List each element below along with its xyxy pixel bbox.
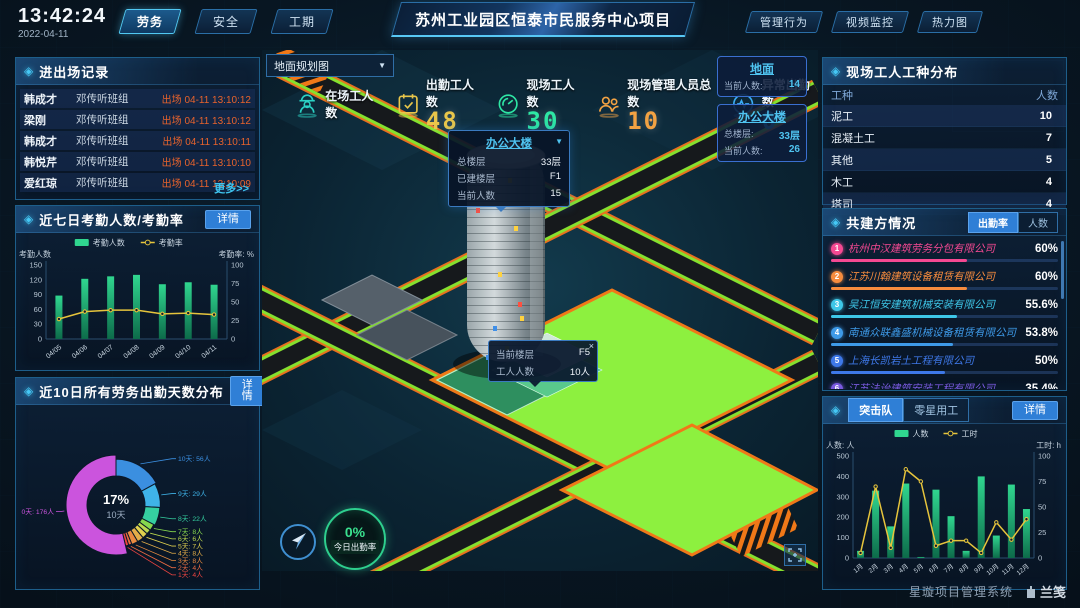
rank-badge: 1 (831, 243, 843, 255)
svg-text:04/07: 04/07 (97, 344, 115, 360)
panel-entry-exit: ◈ 进出场记录 韩成才 邓传听班组 出场 04-11 13:10:12 梁刚 邓… (15, 57, 260, 200)
panel-squad: ◈ 突击队零星用工 详情 人数工时人数: 人工时: h0100200300400… (822, 396, 1067, 590)
panel-title: 共建方情况 (846, 213, 916, 232)
partners-list: 1 杭州中汉建筑劳务分包有限公司 60% 2 江苏川翰建筑设备租赁有限公司 60… (823, 236, 1066, 389)
column-type: 工种 (831, 87, 853, 103)
map-layer-value: 地面规划图 (274, 58, 378, 74)
svg-text:人数: 人数 (913, 429, 929, 439)
partners-tabs: 出勤率人数 (968, 212, 1058, 233)
svg-text:3月: 3月 (882, 562, 895, 575)
zone-row-value: 26 (789, 144, 800, 157)
header-action-label: 管理行为 (760, 14, 808, 30)
workdays-donut-chart: 10天: 56人9天: 29人8天: 22人7天: 8人6天: 6人5天: 7人… (16, 405, 257, 588)
header-action-label: 视频监控 (846, 14, 894, 30)
partner-name: 江苏川翰建筑设备租赁有限公司 (848, 269, 1030, 284)
close-icon[interactable]: × (589, 341, 594, 351)
panel-attendance-chart: ◈ 近七日考勤人数/考勤率 详情 考勤人数考勤率考勤人数考勤率: %030609… (15, 205, 260, 371)
vendor-logo-text: 兰笺 (1040, 582, 1066, 601)
gauge-value: 0% (345, 524, 365, 540)
worker-count: 10 (1040, 110, 1058, 122)
svg-text:120: 120 (29, 275, 42, 284)
more-link[interactable]: 更多>> (214, 180, 249, 196)
header-tab[interactable]: 劳务 (118, 9, 181, 34)
svg-text:400: 400 (836, 472, 849, 481)
worker-type: 混凝土工 (831, 130, 875, 146)
worker-types-table-header: 工种 人数 (823, 85, 1066, 105)
map-layer-select[interactable]: 地面规划图 ▼ (266, 54, 394, 77)
svg-text:100: 100 (231, 261, 244, 270)
zone-row-label: 当前人数: (724, 79, 763, 92)
rank-badge: 5 (831, 355, 843, 367)
panel-title: 现场工人工种分布 (846, 62, 958, 81)
header-tab-label: 工期 (289, 13, 315, 30)
panel-title: 近10日所有劳务出勤天数分布 (39, 382, 223, 401)
clock: 13:42:24 2022-04-11 (18, 5, 106, 40)
zone-card-office-tower: 办公大楼 总楼层:33层 当前人数:26 (717, 104, 807, 162)
worker-icon (294, 89, 320, 119)
svg-text:2月: 2月 (867, 562, 880, 575)
page-title-plaque: 苏州工业园区恒泰市民服务中心项目 (391, 2, 695, 37)
exit-time: 出场 04-11 13:10:12 (162, 112, 251, 127)
popup-row-value: 15 (550, 188, 561, 202)
rank-badge: 3 (831, 299, 843, 311)
partner-value: 60% (1035, 271, 1058, 283)
rank-badge: 6 (831, 383, 843, 390)
svg-text:0: 0 (845, 554, 849, 563)
header-tab-label: 安全 (213, 13, 239, 30)
svg-text:人数: 人: 人数: 人 (826, 440, 854, 450)
panel-attendance-header: ◈ 近七日考勤人数/考勤率 详情 (16, 206, 259, 233)
tab[interactable]: 突击队 (848, 398, 903, 422)
rank-badge: 4 (831, 327, 843, 339)
detail-button[interactable]: 详情 (1012, 401, 1058, 420)
partner-value: 50% (1035, 355, 1058, 367)
partner-progress-fill (831, 287, 967, 290)
worker-count: 7 (1046, 132, 1058, 144)
partner-progress-fill (831, 259, 967, 262)
calendar-check-icon (395, 89, 421, 119)
svg-text:75: 75 (1038, 477, 1046, 486)
panel-worker-types-header: ◈ 现场工人工种分布 (823, 58, 1066, 85)
svg-text:12月: 12月 (1015, 562, 1031, 577)
header-action-button[interactable]: 管理行为 (745, 11, 823, 33)
column-count: 人数 (1036, 87, 1058, 103)
exit-time: 出场 04-11 13:10:11 (162, 133, 251, 148)
svg-text:17%: 17% (103, 492, 129, 507)
stat-onsite-workers: 在场工人数 (294, 76, 382, 132)
worker-name: 梁刚 (24, 112, 76, 128)
zone-row-label: 总楼层: (724, 127, 754, 142)
worker-name: 韩悦芹 (24, 154, 76, 170)
attendance-bar-line-chart: 考勤人数考勤率考勤人数考勤率: %03060901201500255075100… (16, 233, 257, 369)
svg-text:50: 50 (231, 298, 239, 307)
worker-type: 其他 (831, 152, 853, 168)
zone-row-value: 14 (789, 79, 800, 92)
time-text: 13:42:24 (18, 5, 106, 28)
popup-row-label: 总楼层 (457, 154, 486, 168)
svg-text:6天: 6人: 6天: 6人 (178, 535, 203, 543)
partner-progress-track (831, 287, 1058, 290)
footer: 星璇项目管理系统 兰笺 (909, 582, 1066, 601)
svg-text:04/11: 04/11 (201, 344, 219, 360)
tab[interactable]: 零星用工 (903, 398, 969, 422)
popup-row-label: 已建楼层 (457, 171, 495, 185)
partner-progress-track (831, 371, 1058, 374)
scrollbar[interactable] (1061, 241, 1064, 299)
stat-attending-workers: 出勤工人数48 (395, 76, 483, 132)
exit-time: 出场 04-11 13:10:10 (162, 154, 251, 169)
header-tab[interactable]: 安全 (194, 9, 257, 34)
svg-text:25: 25 (1038, 528, 1046, 537)
svg-text:9天: 29人: 9天: 29人 (178, 490, 207, 498)
svg-text:200: 200 (836, 513, 849, 522)
partner-row: 2 江苏川翰建筑设备租赁有限公司 60% (831, 269, 1058, 290)
svg-text:8天: 22人: 8天: 22人 (178, 515, 207, 523)
svg-text:04/06: 04/06 (71, 344, 89, 360)
svg-text:考勤率: 考勤率 (159, 238, 183, 248)
svg-text:5天: 7人: 5天: 7人 (178, 542, 203, 550)
header-action-button[interactable]: 视频监控 (831, 11, 909, 33)
panel-partners-header: ◈ 共建方情况 出勤率人数 (823, 209, 1066, 236)
svg-text:工时: h: 工时: h (1036, 440, 1061, 450)
partner-progress-track (831, 259, 1058, 262)
partner-row: 1 杭州中汉建筑劳务分包有限公司 60% (831, 241, 1058, 262)
compass-icon[interactable] (278, 522, 318, 562)
partner-row: 3 吴江恒安建筑机械安装有限公司 55.6% (831, 297, 1058, 318)
svg-text:3天: 8人: 3天: 8人 (178, 557, 203, 565)
worker-name: 韩成才 (24, 133, 76, 149)
worker-group: 邓传听班组 (76, 112, 162, 127)
svg-text:04/10: 04/10 (174, 344, 192, 360)
entry-exit-row: 韩悦芹 邓传听班组 出场 04-11 13:10:10 (20, 152, 255, 171)
svg-text:考勤率: %: 考勤率: % (218, 249, 254, 259)
zone-row-label: 当前人数: (724, 144, 763, 157)
people-icon (596, 89, 622, 119)
header-tabs: 劳务安全工期 (122, 9, 330, 34)
popup-row-value: 33层 (541, 154, 561, 168)
worker-count: 5 (1046, 154, 1058, 166)
svg-text:150: 150 (29, 261, 42, 270)
svg-text:90: 90 (34, 290, 42, 299)
building-popup-title[interactable]: 办公大楼 (486, 135, 532, 151)
detail-button[interactable]: 详情 (230, 376, 265, 406)
panel-partners: ◈ 共建方情况 出勤率人数 1 杭州中汉建筑劳务分包有限公司 60% 2 江苏川… (822, 208, 1067, 391)
svg-text:4月: 4月 (897, 562, 910, 575)
partner-name: 吴江恒安建筑机械安装有限公司 (848, 297, 1020, 312)
page-title: 苏州工业园区恒泰市民服务中心项目 (397, 3, 689, 35)
header-tab[interactable]: 工期 (270, 9, 333, 34)
svg-text:0: 0 (1038, 554, 1042, 563)
partner-row: 5 上海长凯岩土工程有限公司 50% (831, 353, 1058, 374)
stat-managers: 现场管理人员总数10 (596, 76, 718, 132)
svg-text:100: 100 (1038, 452, 1051, 461)
svg-text:10天: 10天 (106, 510, 125, 520)
smart-site-dashboard: 13:42:24 2022-04-11 劳务安全工期 苏州工业园区恒泰市民服务中… (0, 0, 1080, 608)
squad-bar-line-chart: 人数工时人数: 人工时: h01002003004005000255075100… (823, 424, 1064, 588)
tooltip-row-value: 10人 (570, 364, 590, 378)
partner-name: 上海长凯岩土工程有限公司 (848, 353, 1030, 368)
svg-text:7天: 8人: 7天: 8人 (178, 528, 203, 536)
panel-workdays-header: ◈ 近10日所有劳务出勤天数分布 详情 (16, 378, 259, 405)
chevron-down-icon: ▼ (378, 61, 386, 70)
popup-row-value: F1 (550, 171, 561, 185)
svg-text:300: 300 (836, 492, 849, 501)
partner-name: 江苏法诒建筑安装工程有限公司 (848, 381, 1020, 389)
svg-text:0: 0 (38, 335, 42, 344)
detail-button[interactable]: 详情 (205, 210, 251, 229)
panel-entry-exit-header: ◈ 进出场记录 (16, 58, 259, 85)
floor-tooltip: × 当前楼层F5 工人人数10人 (488, 340, 598, 382)
expand-icon (788, 548, 802, 562)
svg-text:2天: 4人: 2天: 4人 (178, 564, 203, 572)
squad-tabs: 突击队零星用工 (848, 398, 969, 422)
svg-text:500: 500 (836, 452, 849, 461)
fullscreen-toggle[interactable] (784, 544, 806, 566)
tower-logo-icon (1025, 585, 1037, 599)
worker-types-table: 泥工 10 混凝土工 7 其他 5 木工 4 塔司 4 (823, 105, 1066, 215)
svg-text:4天: 8人: 4天: 8人 (178, 550, 203, 558)
entry-exit-row: 韩成才 邓传听班组 出场 04-11 13:10:11 (20, 131, 255, 150)
svg-text:考勤人数: 考勤人数 (19, 249, 51, 259)
system-name: 星璇项目管理系统 (909, 583, 1013, 600)
tooltip-row-label: 当前楼层 (496, 347, 534, 361)
partner-progress-fill (831, 371, 945, 374)
tooltip-row-label: 工人人数 (496, 364, 534, 378)
partner-value: 55.6% (1025, 299, 1058, 311)
partner-progress-track (831, 315, 1058, 318)
date-text: 2022-04-11 (18, 29, 106, 40)
header-tab-label: 劳务 (137, 13, 163, 30)
svg-text:考勤人数: 考勤人数 (93, 238, 125, 248)
popup-row-label: 当前人数 (457, 188, 495, 202)
svg-text:30: 30 (34, 320, 42, 329)
diamond-icon: ◈ (831, 215, 840, 229)
panel-title: 近七日考勤人数/考勤率 (39, 210, 184, 229)
svg-text:04/09: 04/09 (148, 344, 166, 360)
worker-type-row: 混凝土工 7 (823, 127, 1066, 149)
zone-row-value: 33层 (779, 127, 800, 142)
worker-group: 邓传听班组 (76, 91, 162, 106)
entry-exit-row: 韩成才 邓传听班组 出场 04-11 13:10:12 (20, 89, 255, 108)
svg-text:60: 60 (34, 305, 42, 314)
partner-progress-fill (831, 343, 953, 346)
worker-name: 爱红琼 (24, 175, 76, 191)
panel-workdays-donut: ◈ 近10日所有劳务出勤天数分布 详情 10天: 56人9天: 29人8天: 2… (15, 377, 260, 590)
partner-row: 4 南通众联鑫盛机械设备租赁有限公司 53.8% (831, 325, 1058, 346)
worker-type: 木工 (831, 174, 853, 190)
svg-text:8月: 8月 (957, 562, 970, 575)
panel-squad-header: ◈ 突击队零星用工 详情 (823, 397, 1066, 424)
svg-text:10天: 56人: 10天: 56人 (178, 455, 211, 463)
svg-text:5月: 5月 (912, 562, 925, 575)
tab[interactable]: 出勤率 (968, 212, 1018, 233)
partner-row: 6 江苏法诒建筑安装工程有限公司 35.4% (831, 381, 1058, 389)
diamond-icon: ◈ (24, 212, 33, 226)
worker-group: 邓传听班组 (76, 154, 162, 169)
diamond-icon: ◈ (831, 403, 840, 417)
tab[interactable]: 人数 (1018, 212, 1058, 233)
partner-value: 35.4% (1025, 383, 1058, 390)
svg-text:75: 75 (231, 279, 239, 288)
svg-text:50: 50 (1038, 503, 1046, 512)
partner-name: 南通众联鑫盛机械设备租赁有限公司 (848, 325, 1020, 340)
header-action-label: 热力图 (932, 14, 968, 30)
worker-group: 邓传听班组 (76, 175, 162, 190)
exit-time: 出场 04-11 13:10:12 (162, 91, 251, 106)
worker-type-row: 木工 4 (823, 171, 1066, 193)
site-map-area: 地面规划图 ▼ 在场工人数 出勤工人数48 现场工人数30 (262, 50, 818, 571)
partner-name: 杭州中汉建筑劳务分包有限公司 (848, 241, 1030, 256)
svg-text:04/08: 04/08 (123, 344, 141, 360)
panel-title: 进出场记录 (39, 62, 109, 81)
zone-cards: 地面 当前人数:14 办公大楼 总楼层:33层 当前人数:26 (717, 56, 807, 162)
svg-text:04/05: 04/05 (45, 344, 63, 360)
panel-worker-types: ◈ 现场工人工种分布 工种 人数 泥工 10 混凝土工 7 其他 5 木工 4 … (822, 57, 1067, 205)
entry-exit-row: 梁刚 邓传听班组 出场 04-11 13:10:12 (20, 110, 255, 129)
stat-site-workers: 现场工人数30 (495, 76, 583, 132)
header-action-button[interactable]: 热力图 (917, 11, 983, 33)
partner-value: 53.8% (1025, 327, 1058, 339)
worker-type-row: 其他 5 (823, 149, 1066, 171)
partner-value: 60% (1035, 243, 1058, 255)
svg-text:10月: 10月 (985, 562, 1001, 577)
partner-progress-track (831, 343, 1058, 346)
svg-text:11月: 11月 (1000, 562, 1015, 576)
zone-card-title[interactable]: 办公大楼 (724, 108, 800, 125)
zone-card-title[interactable]: 地面 (724, 60, 800, 77)
svg-text:6月: 6月 (927, 562, 940, 575)
worker-type: 泥工 (831, 108, 853, 124)
worker-type-row: 泥工 10 (823, 105, 1066, 127)
vendor-logo: 兰笺 (1025, 582, 1066, 601)
entry-exit-list: 韩成才 邓传听班组 出场 04-11 13:10:12 梁刚 邓传听班组 出场 … (16, 85, 259, 192)
gauge-icon (495, 89, 521, 119)
svg-text:9月: 9月 (973, 562, 986, 575)
svg-text:工时: 工时 (962, 429, 978, 439)
svg-text:0天: 176人: 0天: 176人 (22, 508, 55, 516)
building-popup: 办公大楼 ▼ 总楼层33层 已建楼层F1 当前人数15 (448, 130, 570, 207)
rank-badge: 2 (831, 271, 843, 283)
worker-count: 4 (1046, 176, 1058, 188)
worker-group: 邓传听班组 (76, 133, 162, 148)
chevron-down-icon[interactable]: ▼ (555, 137, 563, 146)
svg-text:1天: 4人: 1天: 4人 (178, 571, 203, 579)
svg-text:25: 25 (231, 316, 239, 325)
diamond-icon: ◈ (831, 64, 840, 78)
diamond-icon: ◈ (24, 64, 33, 78)
svg-text:7月: 7月 (942, 562, 955, 575)
svg-text:1月: 1月 (852, 562, 865, 575)
worker-name: 韩成才 (24, 91, 76, 107)
svg-text:0: 0 (231, 335, 235, 344)
diamond-icon: ◈ (24, 384, 33, 398)
header-right-buttons: 管理行为视频监控热力图 (748, 11, 980, 33)
gauge-label: 今日出勤率 (331, 540, 380, 554)
today-attendance-gauge: 0% 今日出勤率 (324, 508, 386, 570)
zone-card-ground: 地面 当前人数:14 (717, 56, 807, 97)
partner-progress-fill (831, 315, 957, 318)
svg-text:100: 100 (836, 533, 849, 542)
